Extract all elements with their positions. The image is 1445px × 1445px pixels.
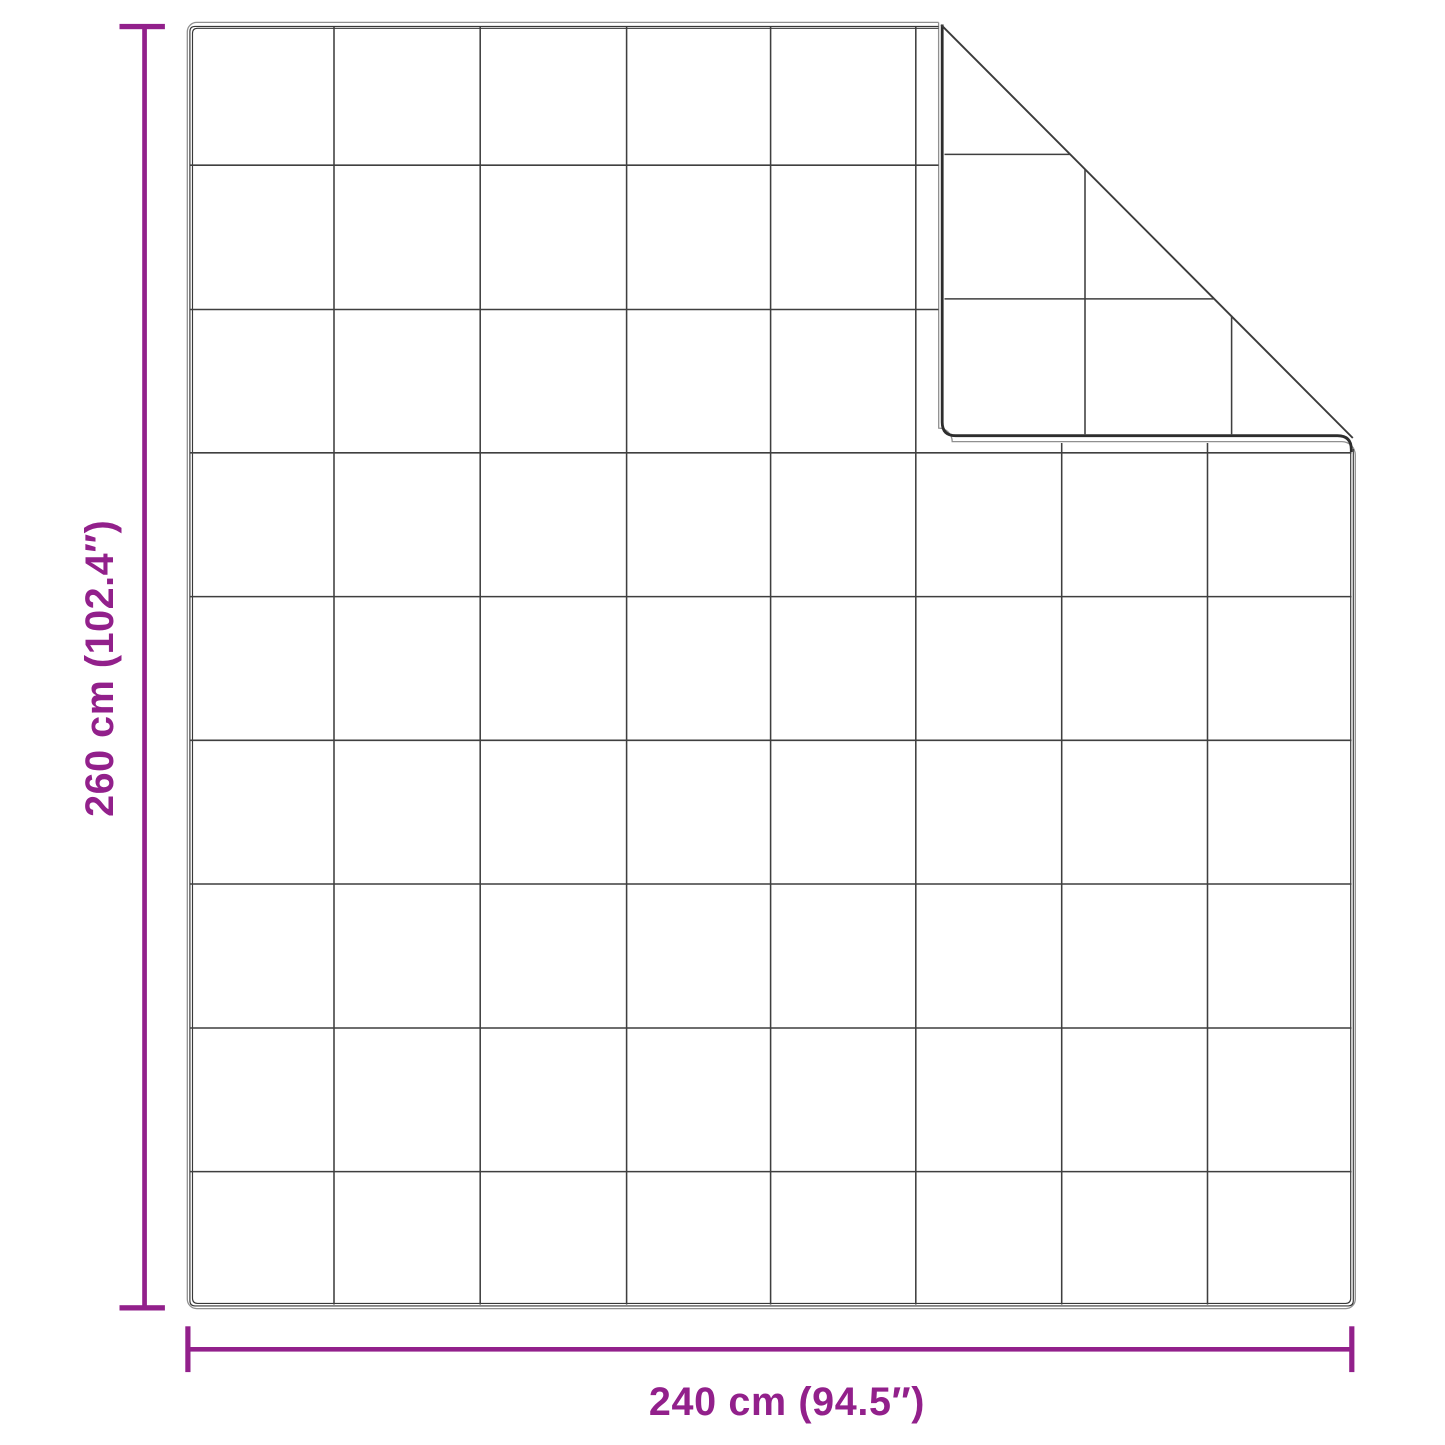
svg-text:260 cm (102.4″): 260 cm (102.4″) [78,520,122,817]
svg-text:240 cm (94.5″): 240 cm (94.5″) [649,1380,925,1424]
